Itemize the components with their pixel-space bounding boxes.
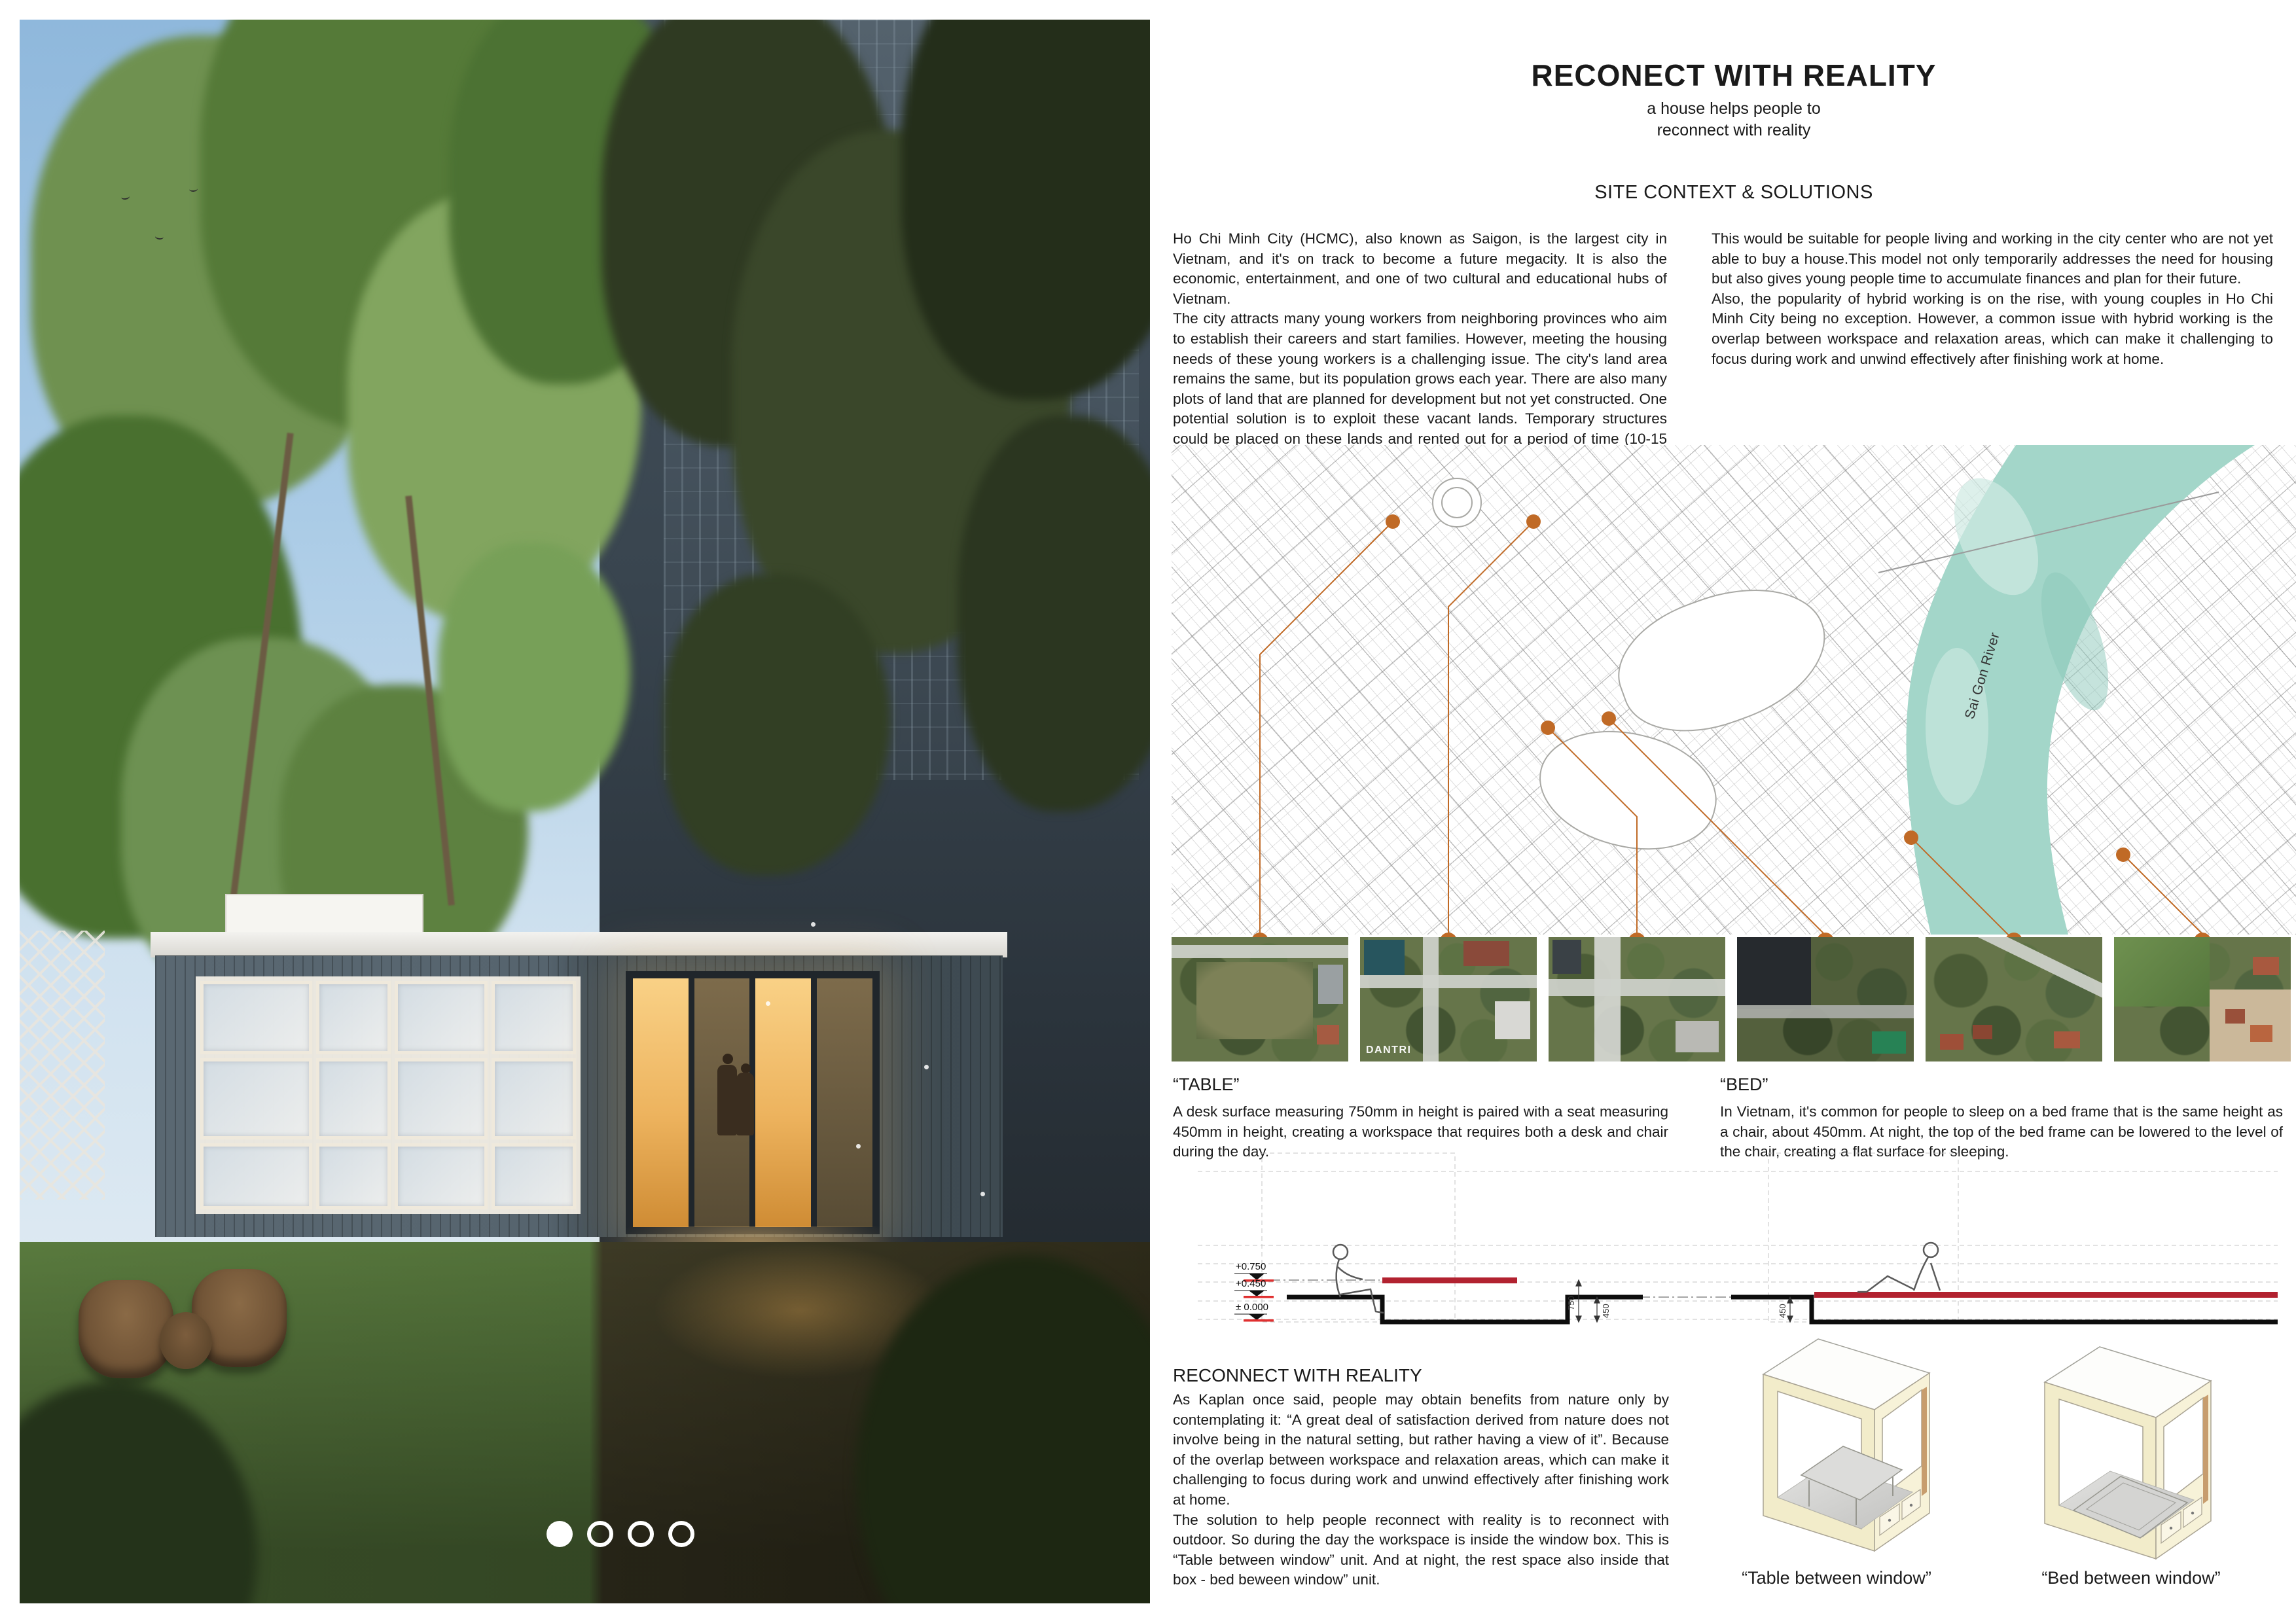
aerial-thumbnail	[1926, 937, 2102, 1061]
rooftop	[2225, 1009, 2245, 1024]
building	[1318, 965, 1343, 1004]
axon-bed-label: “Bed between window”	[2020, 1568, 2242, 1588]
window-pane	[492, 1143, 575, 1209]
aerial-thumbnail	[1172, 937, 1348, 1061]
pagination-dot-4[interactable]	[668, 1521, 694, 1547]
light-speck	[980, 1192, 985, 1196]
pagination-dot-2[interactable]	[587, 1521, 613, 1547]
reconnect-paragraph-1: As Kaplan once said, people may obtain b…	[1173, 1390, 1669, 1510]
tree-canopy-night	[958, 416, 1150, 811]
window-pane	[200, 981, 312, 1054]
building	[1676, 1021, 1719, 1052]
rooftop	[1973, 1025, 1992, 1039]
rooftop	[1940, 1034, 1964, 1050]
bed-section-heading: “BED”	[1720, 1075, 1768, 1095]
window-pane	[200, 1143, 312, 1209]
road	[1360, 975, 1537, 988]
window-pane	[492, 1058, 575, 1139]
intro-column-2: This would be suitable for people living…	[1712, 229, 2273, 369]
axon-table-label: “Table between window”	[1725, 1568, 1948, 1588]
sports-court	[1872, 1031, 1906, 1054]
seated-figure	[1333, 1245, 1384, 1313]
dim-450-right: 450	[1778, 1304, 1787, 1318]
glass-panel	[817, 978, 872, 1227]
park-outline	[1527, 713, 1729, 866]
intro-paragraph: This would be suitable for people living…	[1712, 229, 2273, 289]
tree-canopy	[438, 543, 630, 811]
aerial-thumbnail	[1737, 937, 1914, 1061]
tree-canopy-night	[901, 20, 1150, 400]
road	[1594, 937, 1621, 1061]
page-title: RECONECT WITH REALITY	[1172, 58, 2296, 93]
intro-paragraph: Also, the popularity of hybrid working i…	[1712, 289, 2273, 369]
intro-column-1: Ho Chi Minh City (HCMC), also known as S…	[1173, 229, 1667, 469]
pagination-dot-1[interactable]	[547, 1521, 573, 1547]
neighbor-frame-structure	[20, 931, 105, 1200]
hero-rendering	[20, 20, 1150, 1603]
table-unit-axon	[1763, 1339, 1929, 1551]
window-pane	[316, 1058, 391, 1139]
road	[1423, 937, 1439, 1061]
outdoor-table	[160, 1312, 211, 1369]
skylight-box	[225, 894, 423, 934]
park-ring	[1441, 487, 1473, 518]
aerial-thumbnail	[2114, 937, 2291, 1061]
pagination-dot-3[interactable]	[628, 1521, 654, 1547]
city-map	[1172, 445, 2296, 935]
vacant-lot	[1196, 962, 1313, 1039]
rooftop	[2250, 1025, 2272, 1042]
reconnect-heading: RECONNECT WITH REALITY	[1173, 1365, 1422, 1386]
dim-450-left: 450	[1601, 1304, 1611, 1318]
level-markers: +0.750 +0.450 ± 0.000	[1234, 1261, 1274, 1322]
lit-door-panel	[633, 978, 689, 1227]
person-silhouette	[736, 1073, 754, 1135]
desk-surface	[1382, 1277, 1517, 1283]
page-subtitle-line1: a house helps people to	[1172, 99, 2296, 118]
house-roof	[151, 932, 1007, 957]
road	[1172, 945, 1348, 958]
photo-watermark: DANTRI	[1366, 1044, 1411, 1056]
section-heading: SITE CONTEXT & SOLUTIONS	[1172, 182, 2296, 204]
page-subtitle-line2: reconnect with reality	[1172, 121, 2296, 140]
axon-diagrams	[1728, 1335, 2291, 1567]
presentation-board: RECONECT WITH REALITY a house helps peop…	[0, 0, 2296, 1623]
person-silhouette-head	[741, 1063, 751, 1073]
lit-door-panel	[755, 978, 811, 1227]
window-pane	[492, 981, 575, 1054]
window-box-array	[196, 976, 580, 1214]
rooftop	[2253, 957, 2279, 975]
road	[1737, 1005, 1914, 1018]
green-field	[2114, 937, 2210, 1007]
window-pane	[316, 1143, 391, 1209]
rooftop	[2054, 1031, 2080, 1048]
window-pane	[395, 981, 488, 1054]
building	[1317, 1025, 1339, 1044]
window-pane	[395, 1143, 488, 1209]
person-silhouette	[717, 1065, 737, 1135]
window-pane	[200, 1058, 312, 1139]
table-section-heading: “TABLE”	[1173, 1075, 1240, 1095]
intro-paragraph: Ho Chi Minh City (HCMC), also known as S…	[1173, 229, 1667, 309]
bed-surface	[1814, 1292, 2278, 1298]
aerial-thumbnail	[1549, 937, 1725, 1061]
reclined-figure	[1857, 1243, 1940, 1292]
level-750-label: +0.750	[1236, 1261, 1266, 1272]
building	[1552, 940, 1581, 974]
central-park-outline	[1602, 563, 1844, 755]
window-pane	[395, 1058, 488, 1139]
level-450-label: +0.450	[1236, 1278, 1266, 1289]
building	[1463, 941, 1509, 966]
reconnect-paragraphs: As Kaplan once said, people may obtain b…	[1173, 1390, 1669, 1590]
window-pane	[316, 981, 391, 1054]
light-speck	[924, 1065, 929, 1069]
carousel-pagination	[547, 1521, 694, 1547]
wicker-chair	[79, 1280, 173, 1378]
reconnect-paragraph-2: The solution to help people reconnect wi…	[1173, 1510, 1669, 1590]
building	[1737, 937, 1811, 1009]
road	[1549, 979, 1725, 996]
building	[1495, 1001, 1530, 1039]
aerial-thumbnail: DANTRI	[1360, 937, 1537, 1061]
road	[1926, 937, 2102, 1024]
dim-750: 750	[1566, 1296, 1576, 1310]
building	[1364, 940, 1405, 975]
level-000-label: ± 0.000	[1236, 1302, 1268, 1313]
